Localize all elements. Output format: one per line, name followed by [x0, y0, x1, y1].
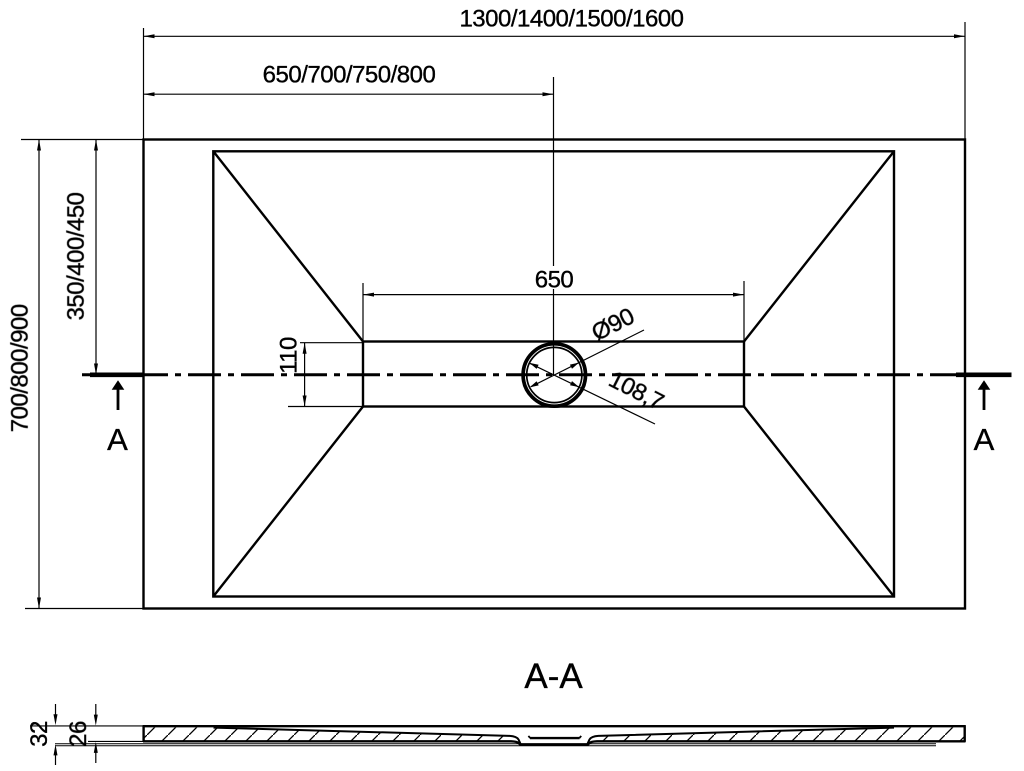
svg-text:650/700/750/800: 650/700/750/800 [263, 61, 436, 88]
svg-text:A-A: A-A [524, 657, 583, 696]
svg-text:700/800/900: 700/800/900 [7, 304, 34, 432]
svg-text:110: 110 [276, 337, 303, 374]
svg-text:32: 32 [26, 721, 53, 747]
svg-text:650: 650 [535, 267, 574, 294]
svg-text:350/400/450: 350/400/450 [63, 192, 90, 320]
svg-text:1300/1400/1500/1600: 1300/1400/1500/1600 [459, 6, 683, 33]
svg-text:26: 26 [65, 721, 92, 747]
svg-text:A: A [974, 422, 995, 457]
svg-text:A: A [107, 422, 128, 457]
